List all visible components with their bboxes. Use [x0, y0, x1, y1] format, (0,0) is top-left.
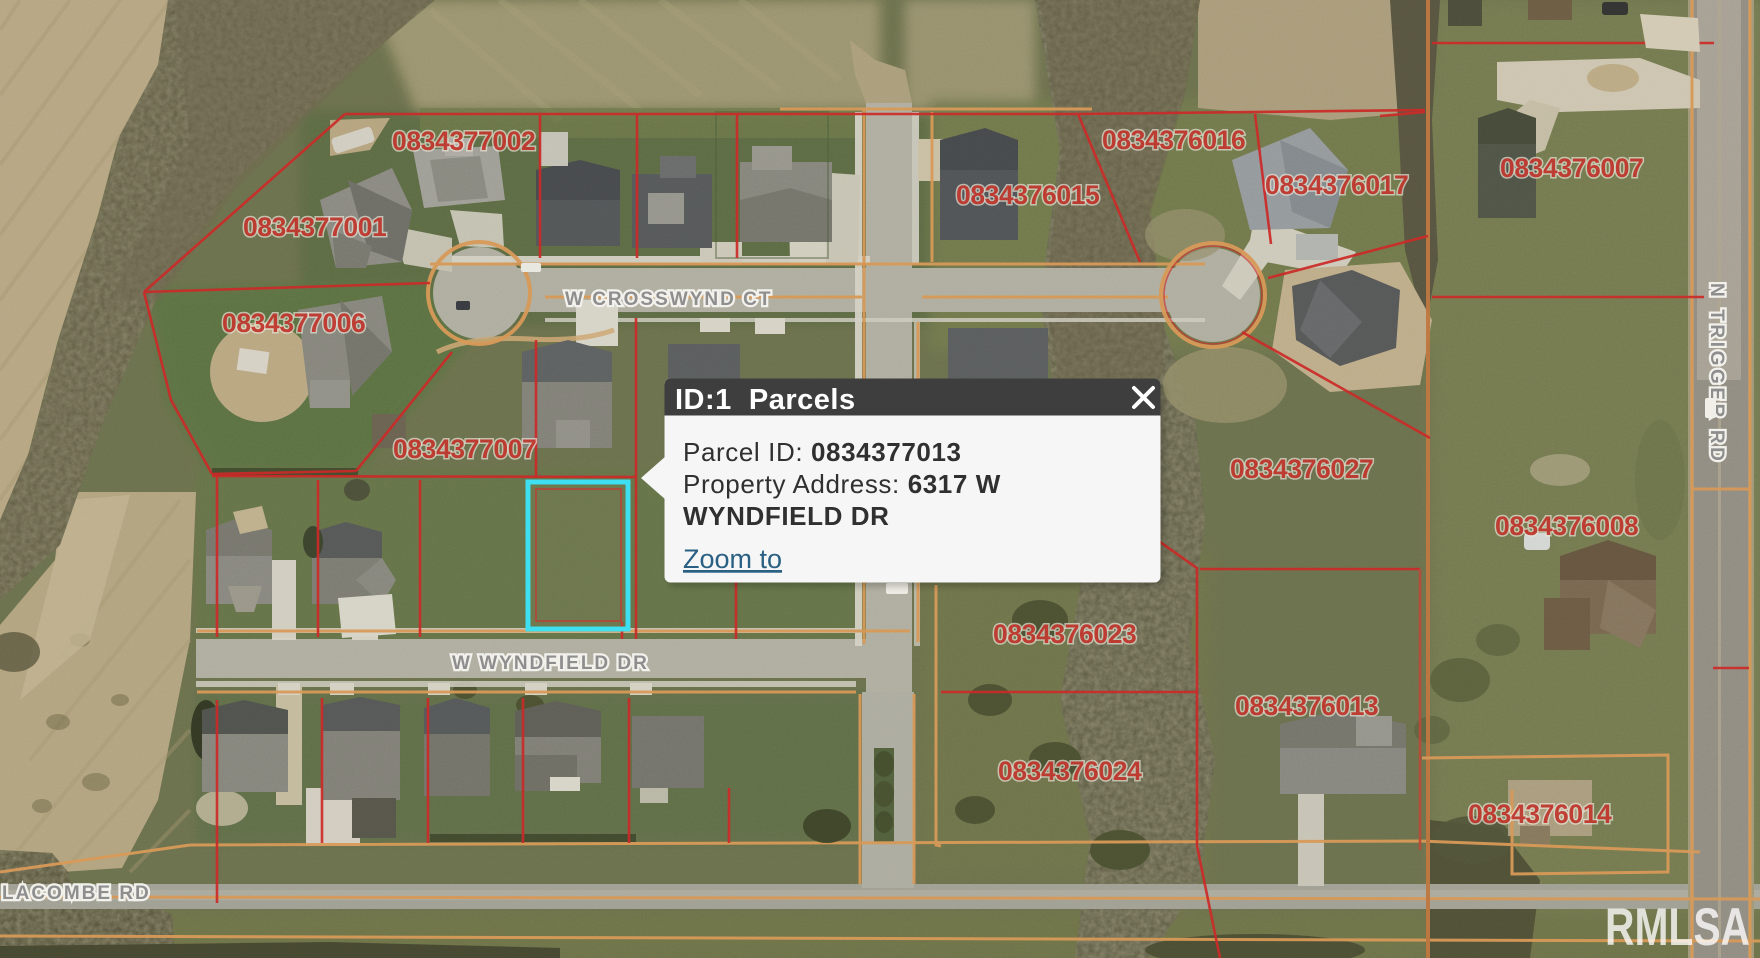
svg-text:0834377006: 0834377006	[222, 308, 365, 338]
svg-text:0834377001: 0834377001	[243, 212, 386, 242]
svg-text:ID:1 Parcels: ID:1 Parcels	[675, 384, 856, 416]
svg-text:0834376017: 0834376017	[1265, 170, 1408, 200]
svg-text:N TRIGGER RD: N TRIGGER RD	[1706, 283, 1727, 464]
svg-text:0834377002: 0834377002	[392, 126, 535, 156]
svg-text:LACOMBE RD: LACOMBE RD	[2, 883, 151, 904]
svg-text:0834376013: 0834376013	[1235, 691, 1378, 721]
svg-text:Zoom to: Zoom to	[683, 544, 782, 574]
svg-text:Property Address: 6317 W: Property Address: 6317 W	[683, 469, 1001, 499]
svg-text:0834376023: 0834376023	[993, 619, 1136, 649]
svg-text:W WYNDFIELD DR: W WYNDFIELD DR	[452, 653, 649, 674]
svg-text:0834376015: 0834376015	[956, 180, 1099, 210]
svg-text:0834377007: 0834377007	[393, 434, 536, 464]
svg-text:W CROSSWYND CT: W CROSSWYND CT	[565, 289, 772, 310]
svg-text:0834376007: 0834376007	[1500, 153, 1643, 183]
svg-text:RMLSA: RMLSA	[1605, 898, 1750, 957]
svg-text:WYNDFIELD DR: WYNDFIELD DR	[683, 501, 890, 531]
svg-text:0834376008: 0834376008	[1495, 511, 1638, 541]
svg-text:Parcel ID: 0834377013: Parcel ID: 0834377013	[683, 437, 962, 467]
svg-text:0834376024: 0834376024	[998, 756, 1142, 786]
svg-text:0834376014: 0834376014	[1468, 799, 1612, 829]
svg-text:0834376027: 0834376027	[1230, 454, 1373, 484]
svg-text:0834376016: 0834376016	[1102, 125, 1245, 155]
